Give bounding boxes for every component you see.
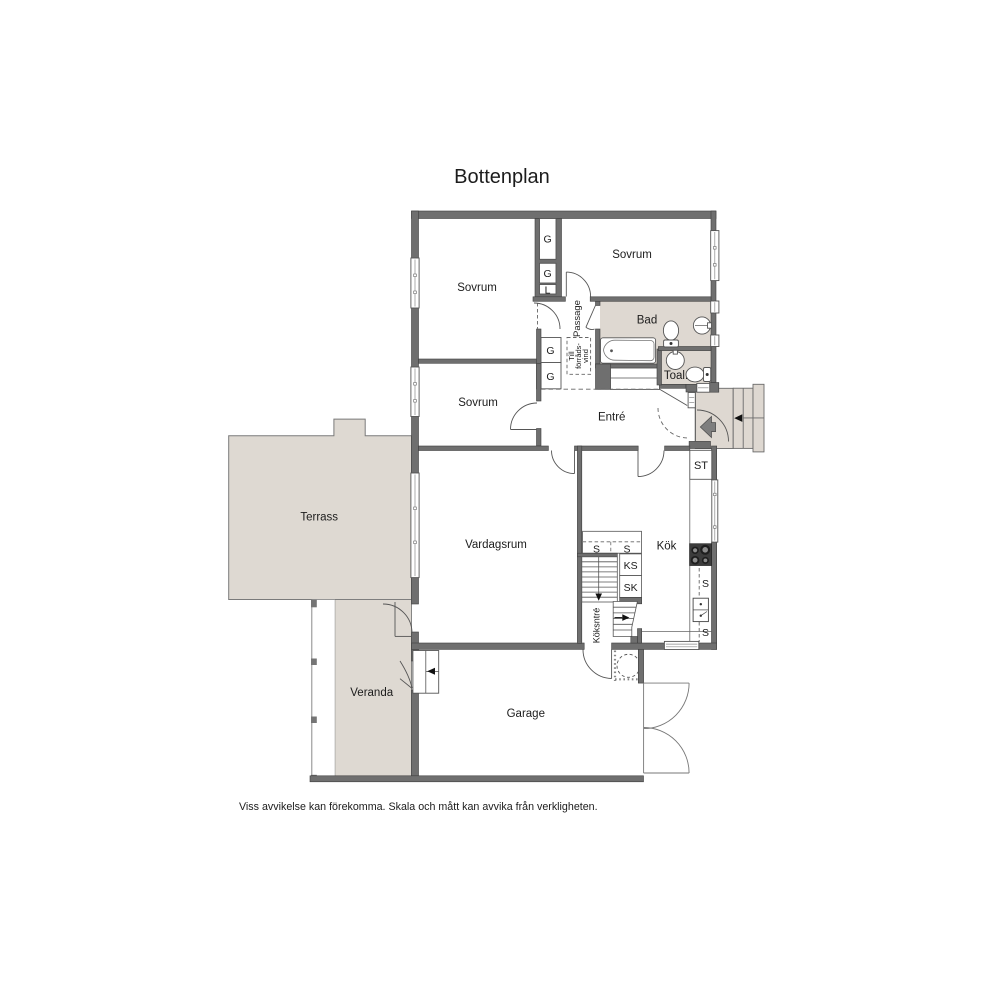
svg-text:G: G	[546, 345, 554, 357]
svg-text:ST: ST	[694, 460, 708, 472]
svg-text:KS: KS	[624, 560, 638, 572]
svg-text:Toal.: Toal.	[664, 370, 688, 382]
svg-text:Garage: Garage	[507, 708, 545, 720]
svg-text:Viss avvikelse kan förekomma.: Viss avvikelse kan förekomma. Skala och …	[239, 801, 598, 813]
svg-text:Entré: Entré	[598, 412, 626, 424]
svg-text:Bad: Bad	[637, 315, 657, 327]
svg-text:G: G	[544, 268, 552, 280]
svg-text:Köksntré: Köksntré	[591, 608, 601, 644]
svg-text:G: G	[544, 234, 552, 246]
svg-text:Sovrum: Sovrum	[457, 282, 497, 294]
svg-text:Terrass: Terrass	[300, 512, 338, 524]
svg-text:vind: vind	[581, 349, 590, 363]
svg-text:S: S	[702, 627, 709, 639]
svg-text:G: G	[546, 371, 554, 383]
svg-text:Sovrum: Sovrum	[458, 397, 498, 409]
svg-text:Bottenplan: Bottenplan	[454, 166, 550, 188]
svg-text:Passage: Passage	[572, 300, 583, 337]
svg-text:S: S	[702, 578, 709, 590]
svg-text:Vardagsrum: Vardagsrum	[465, 539, 527, 551]
svg-text:SK: SK	[624, 582, 638, 594]
svg-text:Sovrum: Sovrum	[612, 249, 652, 261]
svg-text:Veranda: Veranda	[350, 687, 393, 699]
svg-text:L: L	[545, 284, 551, 296]
svg-text:Kök: Kök	[657, 541, 677, 553]
